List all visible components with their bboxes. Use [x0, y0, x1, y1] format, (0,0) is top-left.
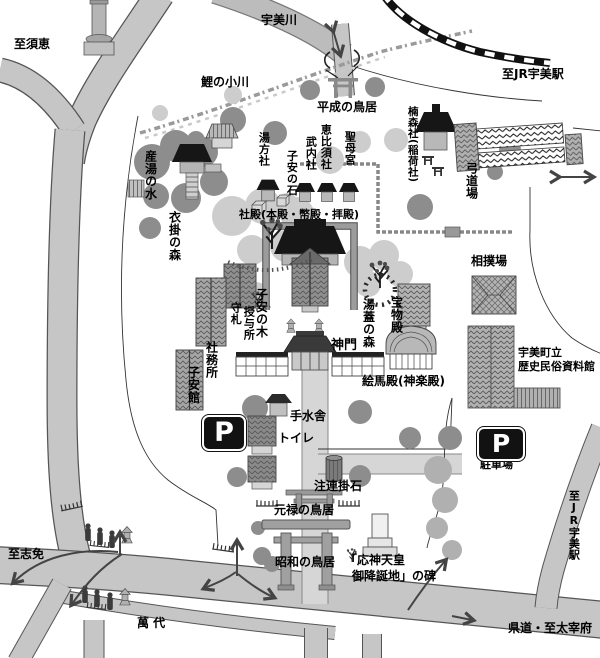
shamusho-building: [196, 278, 226, 346]
label-temizusha: 手水舎: [290, 410, 326, 423]
label-kyudojo: 弓道場: [464, 162, 477, 200]
shimekake-stone: [326, 456, 342, 482]
label-mandai: 萬 代: [137, 617, 165, 630]
temizusha-icon: [265, 394, 292, 416]
label-homotsuden: 宝物殿: [389, 296, 402, 334]
label-showa-no-torii: 昭和の鳥居: [275, 556, 335, 569]
approach-fence-right: [338, 500, 360, 506]
label-toire: トイレ: [278, 432, 314, 445]
label-to-jr-umi-right: 至JR宇美駅: [567, 490, 579, 560]
label-seibo-gu: 聖母宮: [343, 131, 355, 166]
railway-line: [383, 0, 550, 63]
label-to-jr-umi-top: 至JR宇美駅: [502, 68, 564, 81]
label-museum-line2: 歴史民俗資料館: [518, 361, 595, 373]
label-heisei-no-torii: 平成の鳥居: [317, 101, 377, 114]
label-emaden: 絵馬殿(神楽殿): [362, 375, 445, 388]
label-kusumori-sha: 楠森社(稲荷社): [406, 106, 418, 183]
label-koi-no-ogawa: 鯉の小川: [201, 76, 249, 89]
inari-torii-icon: [422, 156, 434, 165]
kusumori-sha-icon: [415, 104, 457, 150]
parking-sign-icon-east: P: [477, 427, 525, 461]
label-sumo-ba: 相撲場: [471, 255, 507, 268]
label-ojin-line1: 「応神天皇: [345, 554, 405, 567]
label-mamorifuda-col1: 守札: [229, 302, 241, 325]
label-umi-river: 宇美川: [261, 14, 297, 27]
label-ojin-line2: 御降誕地」の碑: [352, 570, 436, 583]
label-shinmon: 神門: [331, 339, 357, 354]
shrine-map: 至須恵 宇美川 至JR宇美駅 鯉の小川 平成の鳥居 楠森社(稲荷社) 弓道場 相…: [0, 0, 600, 658]
label-yumokata-sha: 湯方社: [257, 132, 269, 167]
label-genroku-no-torii: 元禄の鳥居: [274, 504, 334, 517]
label-mamorifuda-col2: 授与所: [242, 306, 254, 341]
label-koyasu-no-ki: 子安の木: [254, 288, 267, 338]
label-ubuyu-no-mizu: 産湯の水: [143, 150, 156, 200]
label-ebisu-sha: 恵比須社: [319, 124, 331, 170]
ebisu-sha-icon: [317, 183, 337, 202]
label-museum-line1: 宇美町立: [518, 347, 562, 359]
label-shimekake-ishi: 注連掛石: [314, 480, 362, 493]
label-yubuta-no-mori: 湯蓋の森: [361, 298, 374, 348]
road-north-fork: [0, 0, 160, 558]
label-shamusho: 社務所: [204, 341, 217, 379]
haiden-building: [290, 248, 330, 312]
road-bottom-main: [0, 565, 600, 620]
roadside-fence: [212, 543, 235, 552]
label-to-sue: 至須恵: [14, 38, 50, 51]
label-to-shime: 至志免: [8, 548, 44, 561]
inari-torii-icon-2: [432, 167, 444, 176]
parking-sign-icon-west: P: [202, 415, 246, 451]
toro-lantern-icon: [287, 319, 296, 333]
label-koyasu-no-ishi: 子安の石: [285, 150, 297, 196]
seibo-gu-icon: [339, 183, 359, 202]
toro-lantern-icon-2: [315, 319, 324, 333]
label-kendo-dazaifu: 県道・至太宰府: [508, 622, 592, 635]
sumo-building: [472, 276, 516, 314]
toilet-building: [248, 416, 276, 489]
memorial-tower: [84, 0, 114, 55]
label-shaden: 社殿(本殿・幣殿・拝殿): [239, 209, 359, 221]
label-takeuchi-sha: 武内社: [304, 136, 316, 171]
label-kinukake-no-mori: 衣掛の森: [167, 211, 180, 261]
label-koyasu-kan: 子安館: [186, 366, 199, 404]
